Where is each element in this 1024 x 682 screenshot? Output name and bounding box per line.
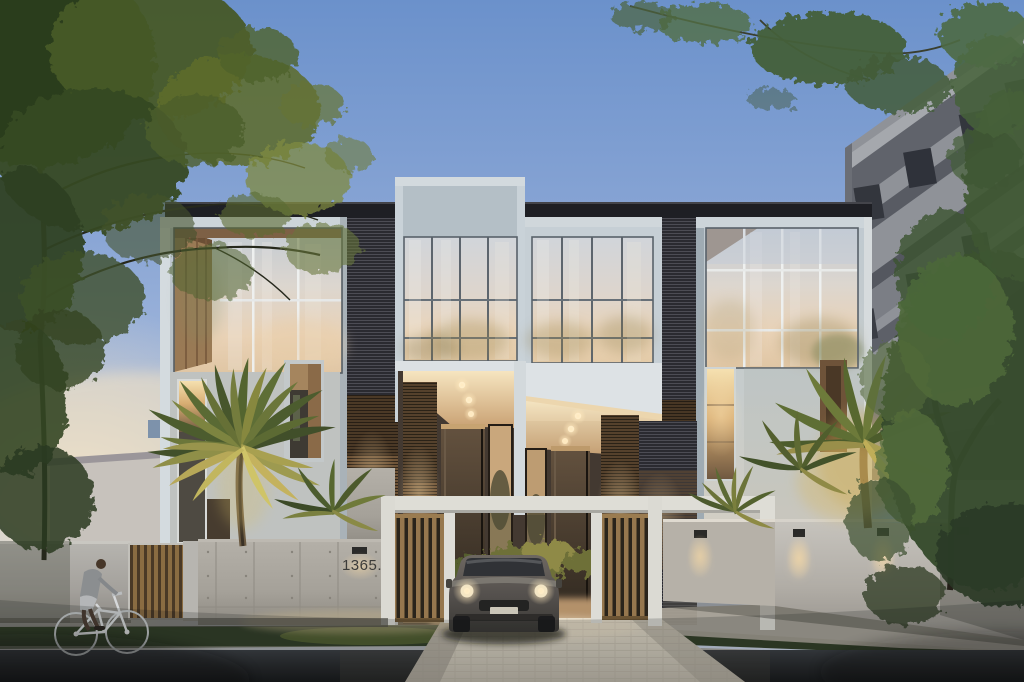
svg-text:1365.: 1365.	[342, 557, 382, 574]
